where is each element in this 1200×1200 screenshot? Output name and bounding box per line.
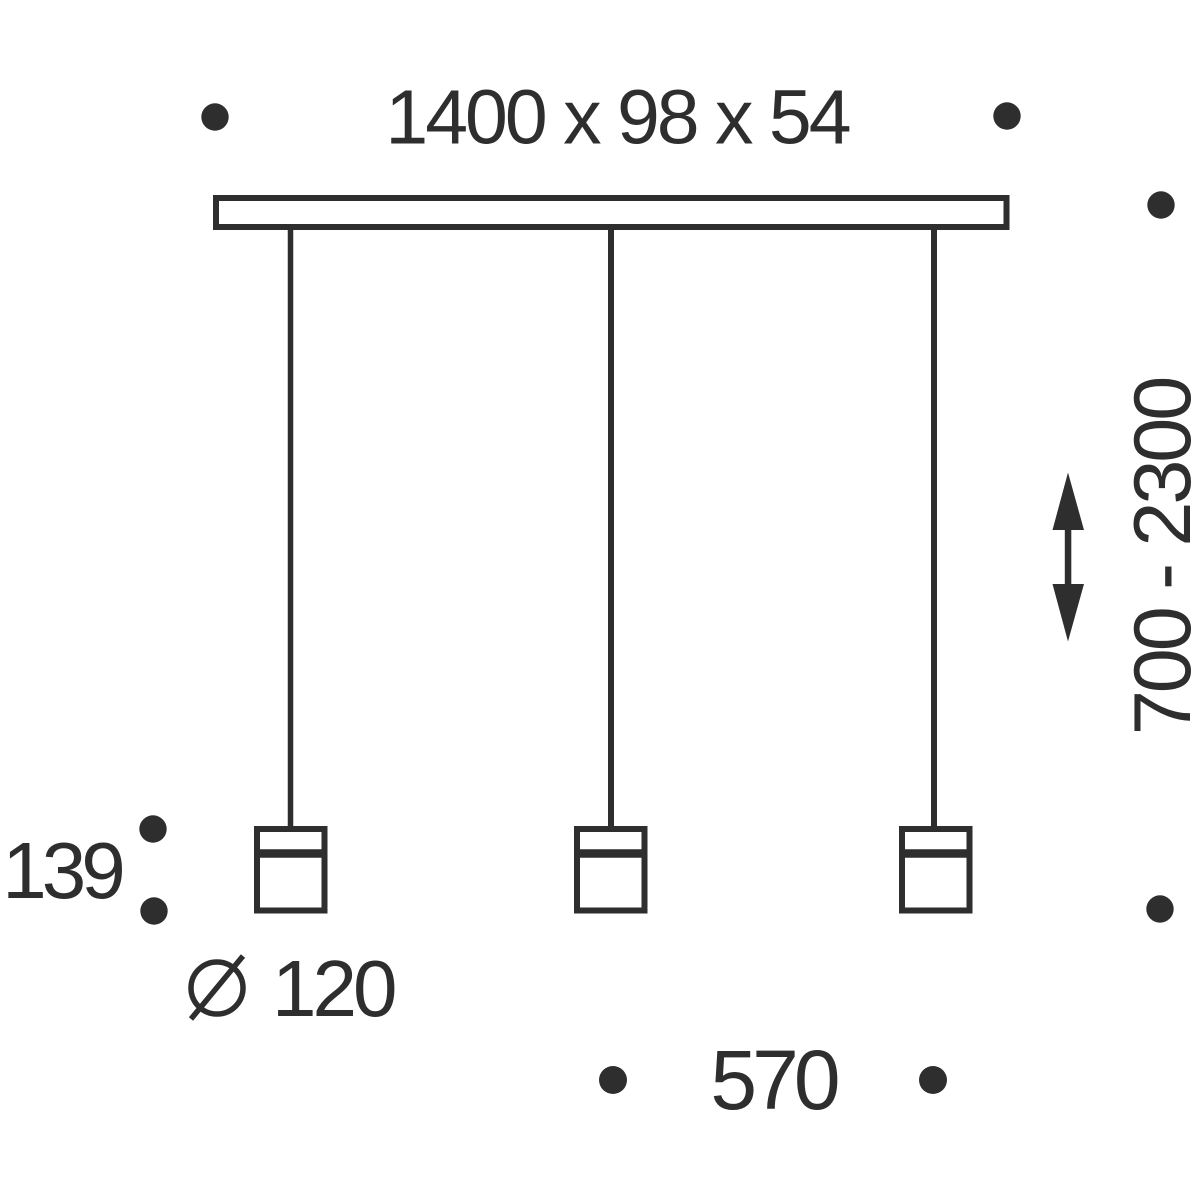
svg-text:139: 139 [2, 826, 122, 915]
svg-text:700 - 2300: 700 - 2300 [1118, 379, 1200, 735]
svg-text:1400 x 98 x 54: 1400 x 98 x 54 [385, 75, 849, 161]
svg-text:570: 570 [710, 1033, 837, 1127]
svg-text:120: 120 [272, 944, 395, 1033]
